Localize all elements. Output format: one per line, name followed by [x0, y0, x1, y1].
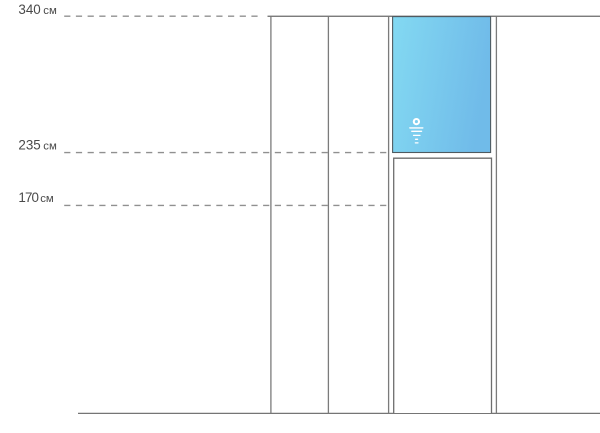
svg-text:170см: 170см	[18, 190, 53, 205]
svg-text:340см: 340см	[18, 2, 57, 17]
svg-text:235см: 235см	[18, 138, 57, 153]
